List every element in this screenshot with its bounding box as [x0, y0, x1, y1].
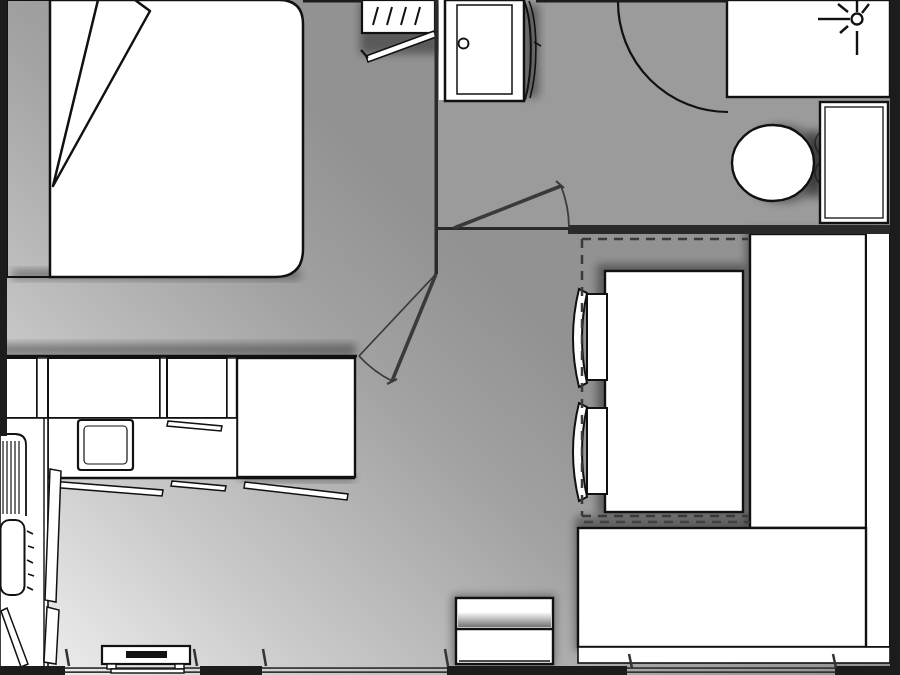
double-bed — [50, 0, 303, 277]
kitchen-unit-b — [48, 358, 160, 418]
tv-screen — [126, 651, 167, 658]
shower-drain — [459, 39, 469, 49]
shower — [445, 0, 524, 101]
kitchen-unit-c — [167, 358, 227, 418]
sink-bowl — [1, 520, 25, 595]
kitchen-counters — [0, 356, 357, 478]
tv-unit — [102, 646, 190, 673]
bench-bottom — [578, 528, 866, 647]
dining-chair-top — [573, 289, 607, 387]
storage-cabinet — [456, 598, 553, 664]
washbasin-counter — [727, 0, 890, 97]
toilet-cistern — [820, 102, 888, 223]
bench-backrest — [866, 230, 890, 647]
toilet-bowl — [732, 125, 814, 201]
dinette — [573, 230, 890, 663]
bench-right — [750, 234, 866, 528]
tall-unit — [237, 358, 355, 477]
floor-plan — [0, 0, 900, 675]
floor-plan-canvas — [0, 0, 900, 675]
bench-kick — [578, 647, 890, 663]
dining-table — [605, 271, 743, 512]
hob — [78, 420, 133, 470]
dining-chair-bottom — [573, 403, 607, 501]
